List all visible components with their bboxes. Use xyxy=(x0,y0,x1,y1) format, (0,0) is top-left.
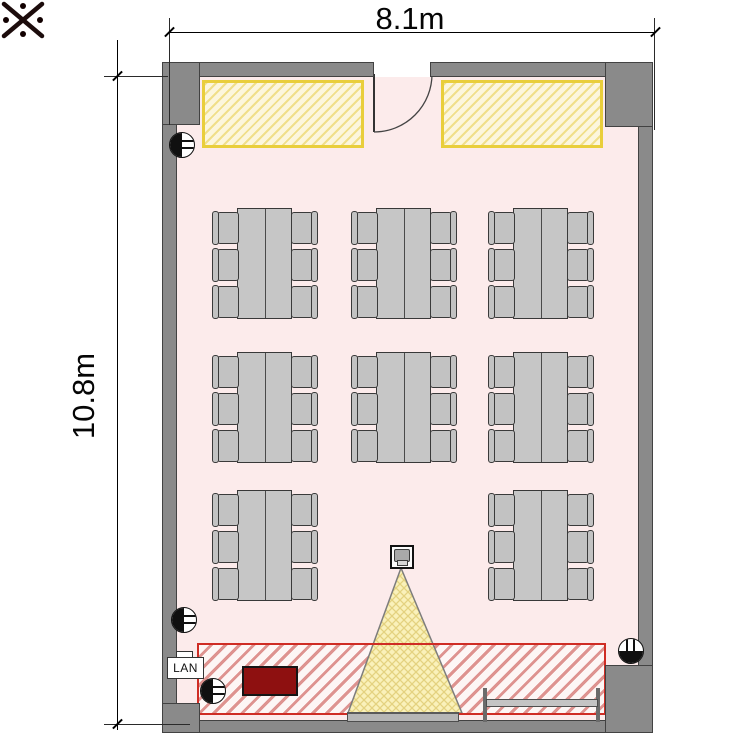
reference-mark-icon xyxy=(0,0,46,40)
chair-back xyxy=(311,285,318,319)
chair-back xyxy=(351,211,358,245)
chair-back xyxy=(587,567,594,601)
chair-back xyxy=(450,429,457,463)
width-dimension-label: 8.1m xyxy=(376,1,445,37)
projector-lens xyxy=(397,560,408,566)
chair-back xyxy=(351,355,358,389)
chair-back xyxy=(488,248,495,282)
chair xyxy=(567,249,589,281)
chair xyxy=(217,286,239,318)
chair xyxy=(493,430,515,462)
outlet-fill xyxy=(619,651,643,663)
whiteboard xyxy=(486,699,598,707)
wall-right xyxy=(638,62,653,733)
chair xyxy=(217,531,239,563)
chair-back xyxy=(488,429,495,463)
chair xyxy=(430,249,452,281)
chair xyxy=(291,286,313,318)
table xyxy=(513,352,568,463)
chair-back xyxy=(311,567,318,601)
chair xyxy=(217,356,239,388)
chair-back xyxy=(587,530,594,564)
chair xyxy=(217,249,239,281)
chair xyxy=(291,212,313,244)
extension-line xyxy=(654,18,655,130)
chair xyxy=(567,393,589,425)
chair xyxy=(567,212,589,244)
chair xyxy=(567,531,589,563)
power-outlet-symbol xyxy=(169,132,195,158)
chair xyxy=(493,356,515,388)
outlet-line xyxy=(633,639,635,663)
table xyxy=(237,490,292,601)
chair-back xyxy=(488,530,495,564)
chair xyxy=(567,568,589,600)
chair xyxy=(356,249,378,281)
chair-back xyxy=(311,211,318,245)
chair-back xyxy=(212,355,219,389)
chair xyxy=(291,393,313,425)
chair xyxy=(430,286,452,318)
chair-back xyxy=(488,493,495,527)
chair xyxy=(356,356,378,388)
column-bottom-right xyxy=(605,665,653,733)
dimension-line-height xyxy=(117,40,118,730)
chair xyxy=(493,531,515,563)
chair xyxy=(356,430,378,462)
chair-back xyxy=(450,392,457,426)
table-group xyxy=(492,208,589,320)
chair-back xyxy=(450,211,457,245)
chair-back xyxy=(311,248,318,282)
chair xyxy=(217,494,239,526)
chair-back xyxy=(212,530,219,564)
chair-back xyxy=(311,530,318,564)
table-group xyxy=(492,352,589,464)
outlet-fill xyxy=(170,133,182,157)
chair xyxy=(493,568,515,600)
lan-port: LAN xyxy=(167,657,204,679)
chair-back xyxy=(587,285,594,319)
table-group xyxy=(355,352,452,464)
chair-back xyxy=(212,392,219,426)
table xyxy=(513,208,568,319)
chair xyxy=(493,286,515,318)
outlet-line xyxy=(201,693,225,695)
chair xyxy=(291,356,313,388)
chair-back xyxy=(450,285,457,319)
outlet-line xyxy=(172,615,196,617)
chair xyxy=(493,212,515,244)
chair-back xyxy=(587,211,594,245)
chair-back xyxy=(351,285,358,319)
chair-back xyxy=(488,567,495,601)
chair-back xyxy=(351,248,358,282)
chair xyxy=(567,430,589,462)
table-group xyxy=(216,352,313,464)
chair-back xyxy=(587,392,594,426)
chair xyxy=(217,430,239,462)
chair-back xyxy=(488,355,495,389)
table-group xyxy=(216,490,313,602)
outlet-line xyxy=(172,622,196,624)
storage-area-left xyxy=(202,80,364,148)
chair-back xyxy=(488,285,495,319)
chair xyxy=(291,430,313,462)
chair xyxy=(356,212,378,244)
outlet-fill xyxy=(201,679,213,703)
projector-icon xyxy=(390,545,414,569)
height-dimension-label: 10.8m xyxy=(66,353,102,439)
wall-left xyxy=(162,62,177,733)
chair xyxy=(567,356,589,388)
chair xyxy=(493,393,515,425)
chair-back xyxy=(351,392,358,426)
table xyxy=(513,490,568,601)
chair xyxy=(567,494,589,526)
chair xyxy=(291,494,313,526)
table xyxy=(237,352,292,463)
outlet-line xyxy=(170,147,194,149)
chair-back xyxy=(450,355,457,389)
chair-back xyxy=(488,392,495,426)
column-top-left xyxy=(162,62,200,125)
chair-back xyxy=(212,429,219,463)
table-group xyxy=(216,208,313,320)
chair-back xyxy=(311,493,318,527)
chair-back xyxy=(212,567,219,601)
chair-back xyxy=(587,248,594,282)
power-outlet-symbol xyxy=(618,638,644,664)
chair-back xyxy=(488,211,495,245)
outlet-fill xyxy=(172,608,184,632)
chair-back xyxy=(311,429,318,463)
column-bottom-left xyxy=(162,703,200,733)
chair xyxy=(567,286,589,318)
power-outlet-symbol xyxy=(200,678,226,704)
chair xyxy=(217,212,239,244)
chair-back xyxy=(587,355,594,389)
outlet-line xyxy=(626,639,628,663)
column-top-right xyxy=(605,62,653,127)
chair-back xyxy=(450,248,457,282)
outlet-line xyxy=(201,686,225,688)
chair xyxy=(217,393,239,425)
chair-back xyxy=(311,355,318,389)
table xyxy=(376,208,431,319)
chair xyxy=(356,393,378,425)
projection-screen xyxy=(347,712,459,722)
table xyxy=(376,352,431,463)
table-group xyxy=(492,490,589,602)
table-group xyxy=(355,208,452,320)
chair xyxy=(291,568,313,600)
chair xyxy=(493,249,515,281)
chair-back xyxy=(212,248,219,282)
chair-back xyxy=(212,493,219,527)
chair xyxy=(291,531,313,563)
chair xyxy=(430,212,452,244)
chair xyxy=(356,286,378,318)
lan-label: LAN xyxy=(173,661,198,675)
chair-back xyxy=(587,429,594,463)
chair xyxy=(430,393,452,425)
power-outlet-symbol xyxy=(171,607,197,633)
chair-back xyxy=(311,392,318,426)
chair xyxy=(217,568,239,600)
storage-area-right xyxy=(441,80,603,148)
chair xyxy=(430,430,452,462)
chair-back xyxy=(587,493,594,527)
chair xyxy=(430,356,452,388)
outlet-line xyxy=(170,140,194,142)
chair-back xyxy=(212,211,219,245)
floor-plan: LAN 8.1m 10.8m xyxy=(0,0,750,750)
chair-back xyxy=(351,429,358,463)
chair-back xyxy=(212,285,219,319)
chair xyxy=(493,494,515,526)
extension-line xyxy=(169,18,170,125)
chair xyxy=(291,249,313,281)
table xyxy=(237,208,292,319)
